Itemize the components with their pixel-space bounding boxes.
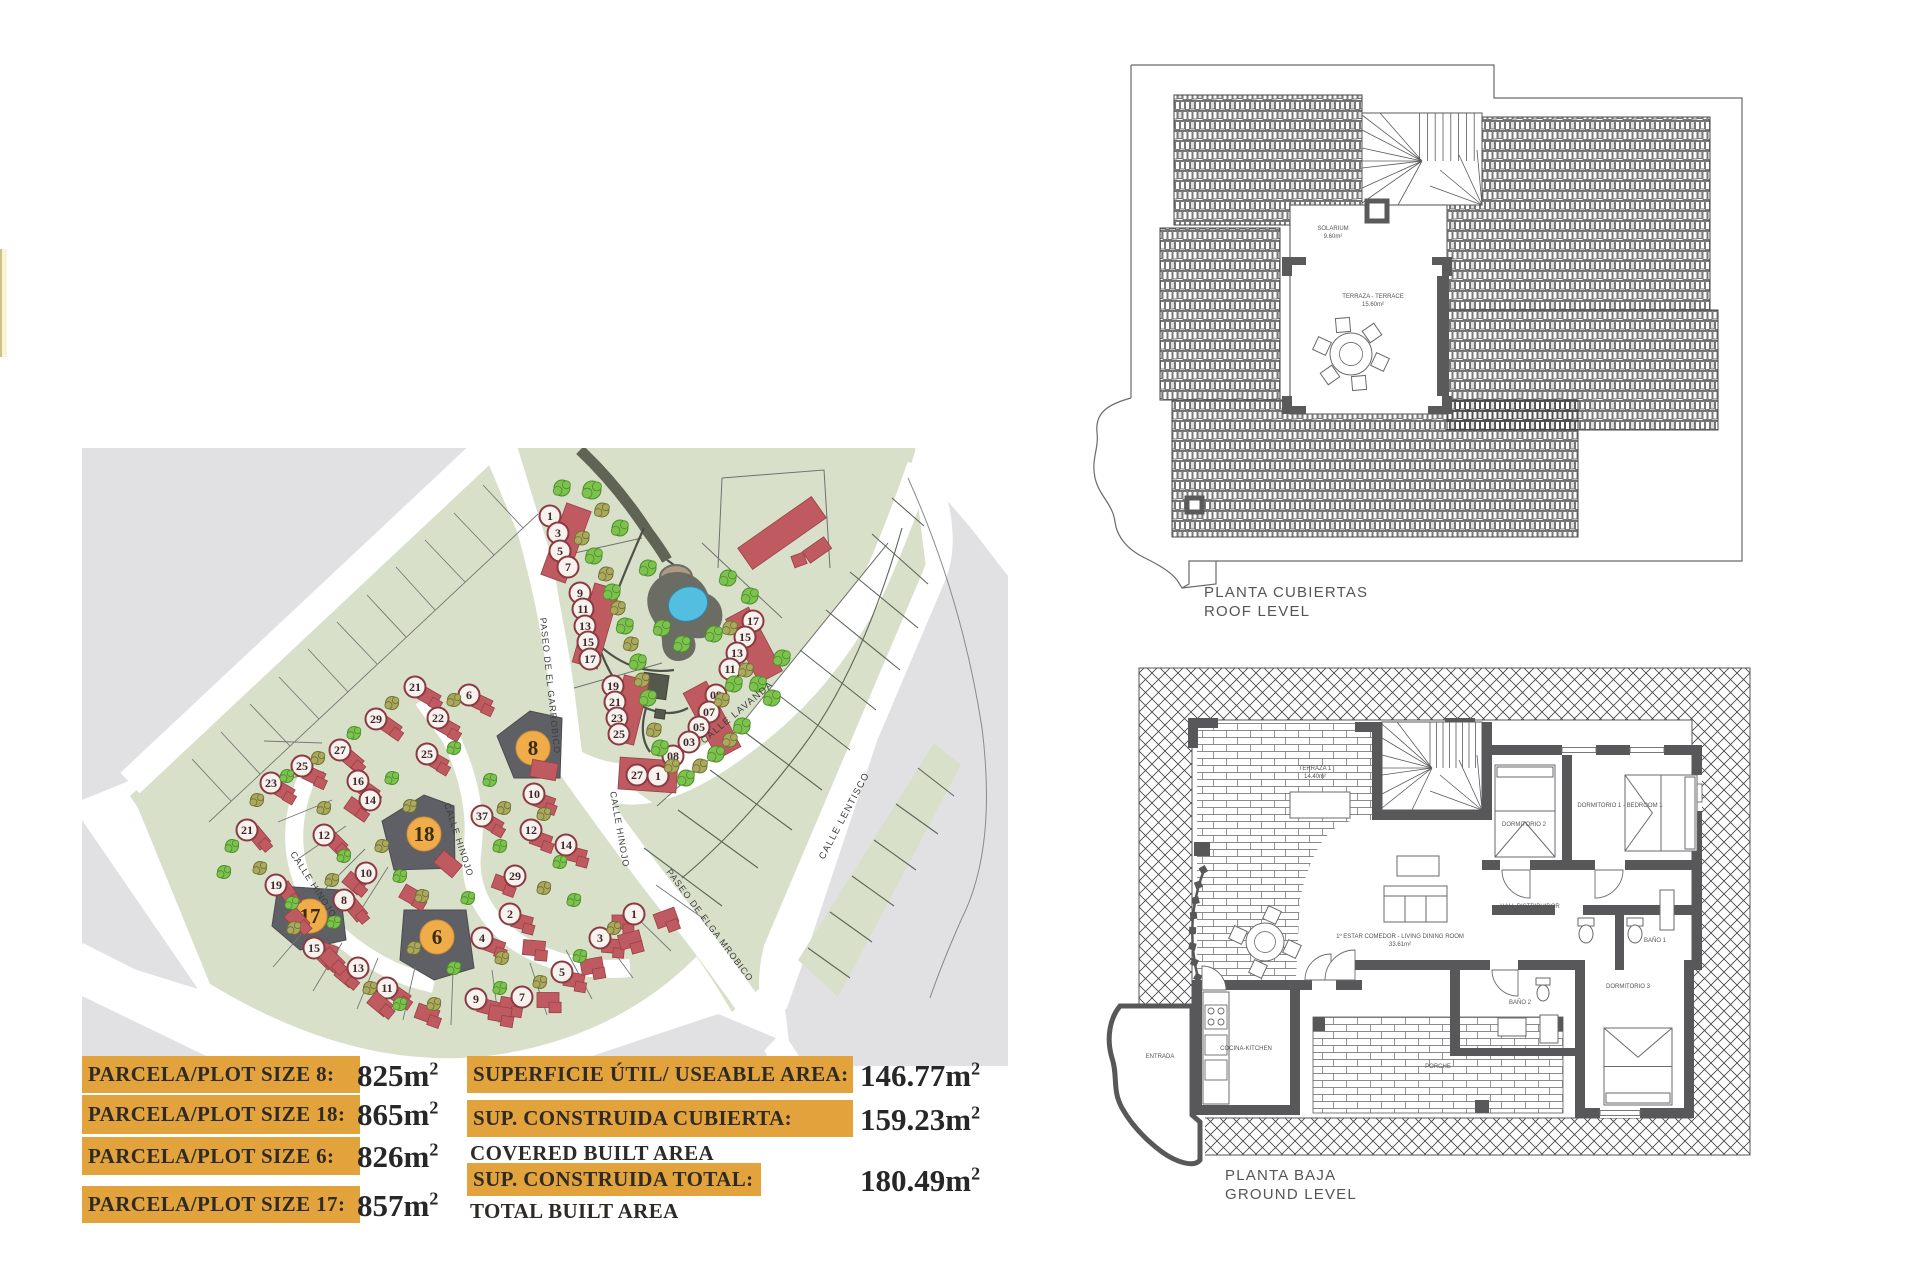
svg-text:7: 7 (519, 990, 525, 1004)
svg-text:DORMITORIO 3: DORMITORIO 3 (1606, 984, 1651, 990)
svg-text:15: 15 (739, 630, 751, 644)
svg-text:07: 07 (703, 705, 715, 719)
svg-text:5: 5 (557, 544, 563, 558)
svg-text:15: 15 (308, 941, 320, 955)
svg-text:BAÑO 2: BAÑO 2 (1509, 999, 1532, 1006)
svg-text:14: 14 (364, 793, 376, 807)
svg-text:4: 4 (479, 931, 485, 945)
svg-text:29: 29 (370, 712, 382, 726)
svg-text:29: 29 (509, 869, 521, 883)
svg-text:DORMITORIO 2: DORMITORIO 2 (1502, 822, 1547, 828)
svg-text:PLANTA BAJA: PLANTA BAJA (1225, 1167, 1336, 1184)
svg-text:10: 10 (528, 787, 540, 801)
svg-text:TERRAZA - TERRACE: TERRAZA - TERRACE (1342, 294, 1404, 300)
svg-text:3: 3 (597, 931, 603, 945)
svg-text:10: 10 (360, 866, 372, 880)
svg-text:ENTRADA: ENTRADA (1146, 1054, 1175, 1060)
svg-text:05: 05 (693, 720, 705, 734)
svg-text:2: 2 (507, 907, 513, 921)
svg-text:11: 11 (577, 602, 588, 616)
svg-text:DORMITORIO 1 - BEDROOM 1: DORMITORIO 1 - BEDROOM 1 (1577, 803, 1663, 809)
svg-text:11: 11 (724, 662, 735, 676)
svg-text:12: 12 (525, 823, 537, 837)
svg-text:17: 17 (584, 652, 596, 666)
svg-text:BAÑO 1: BAÑO 1 (1644, 937, 1667, 944)
svg-text:6: 6 (466, 688, 472, 702)
svg-text:8: 8 (528, 736, 539, 760)
svg-text:12: 12 (318, 828, 330, 842)
svg-text:11: 11 (381, 981, 392, 995)
svg-text:25: 25 (421, 747, 433, 761)
svg-text:03: 03 (683, 735, 695, 749)
svg-text:7: 7 (565, 560, 571, 574)
svg-text:1: 1 (631, 907, 637, 921)
svg-text:3: 3 (555, 526, 561, 540)
svg-text:18: 18 (414, 822, 435, 846)
svg-text:25: 25 (613, 727, 625, 741)
svg-text:GROUND LEVEL: GROUND LEVEL (1225, 1186, 1357, 1203)
svg-text:COCINA-KITCHEN: COCINA-KITCHEN (1220, 1046, 1272, 1052)
svg-text:23: 23 (265, 776, 277, 790)
svg-text:37: 37 (476, 809, 488, 823)
svg-text:21: 21 (409, 680, 421, 694)
svg-text:21: 21 (241, 823, 253, 837)
svg-text:1º ESTAR COMEDOR - LIVING DINI: 1º ESTAR COMEDOR - LIVING DINING ROOM (1336, 933, 1464, 940)
svg-text:25: 25 (296, 759, 308, 773)
svg-text:PORCHE: PORCHE (1425, 1064, 1451, 1070)
svg-text:14: 14 (560, 838, 572, 852)
svg-text:ROOF LEVEL: ROOF LEVEL (1204, 603, 1310, 620)
svg-text:16: 16 (352, 774, 364, 788)
svg-text:27: 27 (334, 743, 346, 757)
svg-text:13: 13 (352, 961, 364, 975)
svg-text:TERRAZA 1: TERRAZA 1 (1299, 766, 1332, 772)
svg-text:27: 27 (631, 768, 643, 782)
svg-text:33.61m²: 33.61m² (1389, 942, 1411, 948)
svg-text:1: 1 (655, 769, 661, 783)
svg-text:SOLARIUM: SOLARIUM (1317, 226, 1348, 232)
svg-text:9: 9 (473, 992, 479, 1006)
svg-text:1: 1 (547, 509, 553, 523)
svg-text:19: 19 (270, 878, 282, 892)
svg-text:14.40m²: 14.40m² (1304, 774, 1326, 780)
svg-text:6: 6 (432, 925, 443, 949)
svg-text:22: 22 (432, 711, 444, 725)
svg-text:15.60m²: 15.60m² (1362, 302, 1384, 308)
svg-text:8: 8 (341, 893, 347, 907)
svg-text:17: 17 (747, 614, 759, 628)
svg-text:15: 15 (582, 635, 594, 649)
svg-text:5: 5 (559, 965, 565, 979)
svg-text:9.60m²: 9.60m² (1324, 234, 1343, 240)
svg-text:PLANTA CUBIERTAS: PLANTA CUBIERTAS (1204, 584, 1368, 601)
svg-text:HALL DISTRIBUIDOR: HALL DISTRIBUIDOR (1500, 904, 1560, 910)
